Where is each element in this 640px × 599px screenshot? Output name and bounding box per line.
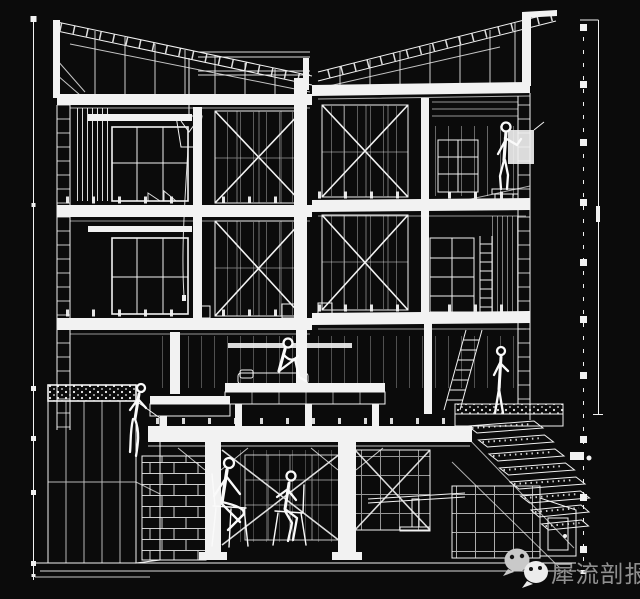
x-brace-panel	[215, 221, 302, 316]
slat-screen	[76, 108, 108, 201]
screenshot-root: 犀流剖报	[0, 0, 640, 599]
brick-wall	[142, 456, 206, 560]
section-drawing-svg: 犀流剖报	[0, 0, 640, 599]
left-wall	[57, 105, 70, 430]
watermark-text: 犀流剖报	[551, 560, 640, 588]
